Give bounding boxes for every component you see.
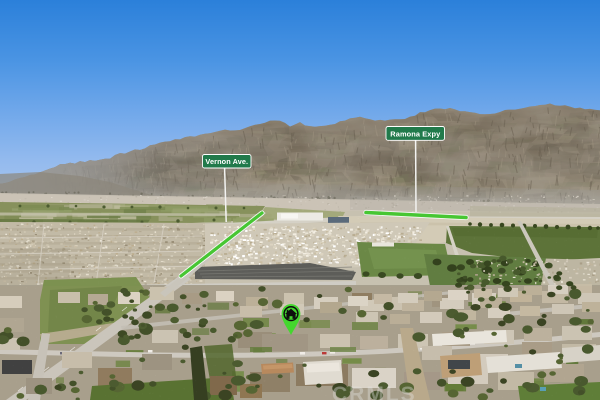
svg-text:CRMLS: CRMLS <box>332 383 417 400</box>
svg-text:Ramona Expy: Ramona Expy <box>390 129 441 138</box>
svg-text:Vernon Ave.: Vernon Ave. <box>205 157 248 166</box>
